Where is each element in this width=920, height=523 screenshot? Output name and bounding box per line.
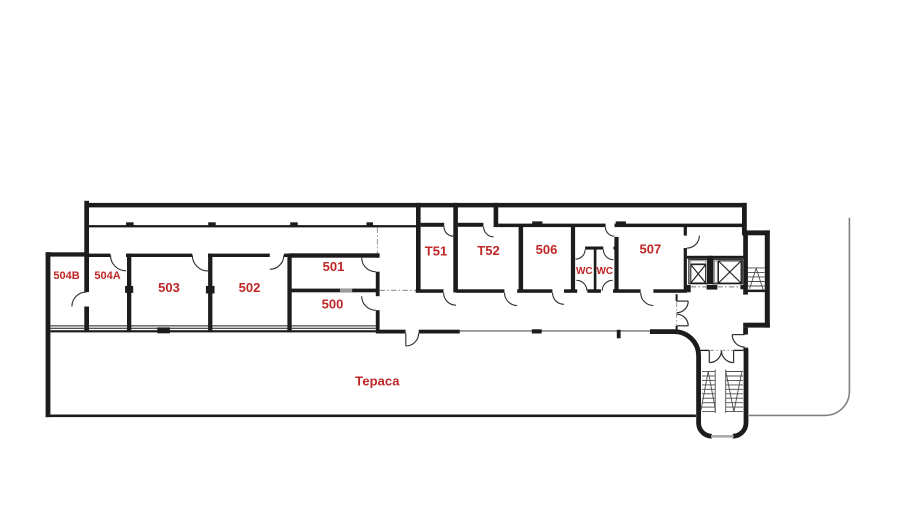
svg-text:T52: T52	[477, 243, 499, 258]
svg-text:Тераса: Тераса	[355, 374, 400, 389]
svg-text:504A: 504A	[94, 270, 120, 282]
svg-text:WC: WC	[596, 266, 613, 277]
svg-text:WC: WC	[576, 266, 593, 277]
svg-text:500: 500	[322, 297, 344, 312]
svg-text:T51: T51	[425, 244, 447, 259]
svg-text:502: 502	[239, 280, 261, 295]
svg-text:501: 501	[323, 259, 345, 274]
svg-text:507: 507	[640, 242, 662, 257]
svg-text:506: 506	[536, 242, 558, 257]
svg-text:504B: 504B	[53, 270, 79, 282]
svg-text:503: 503	[158, 280, 180, 295]
